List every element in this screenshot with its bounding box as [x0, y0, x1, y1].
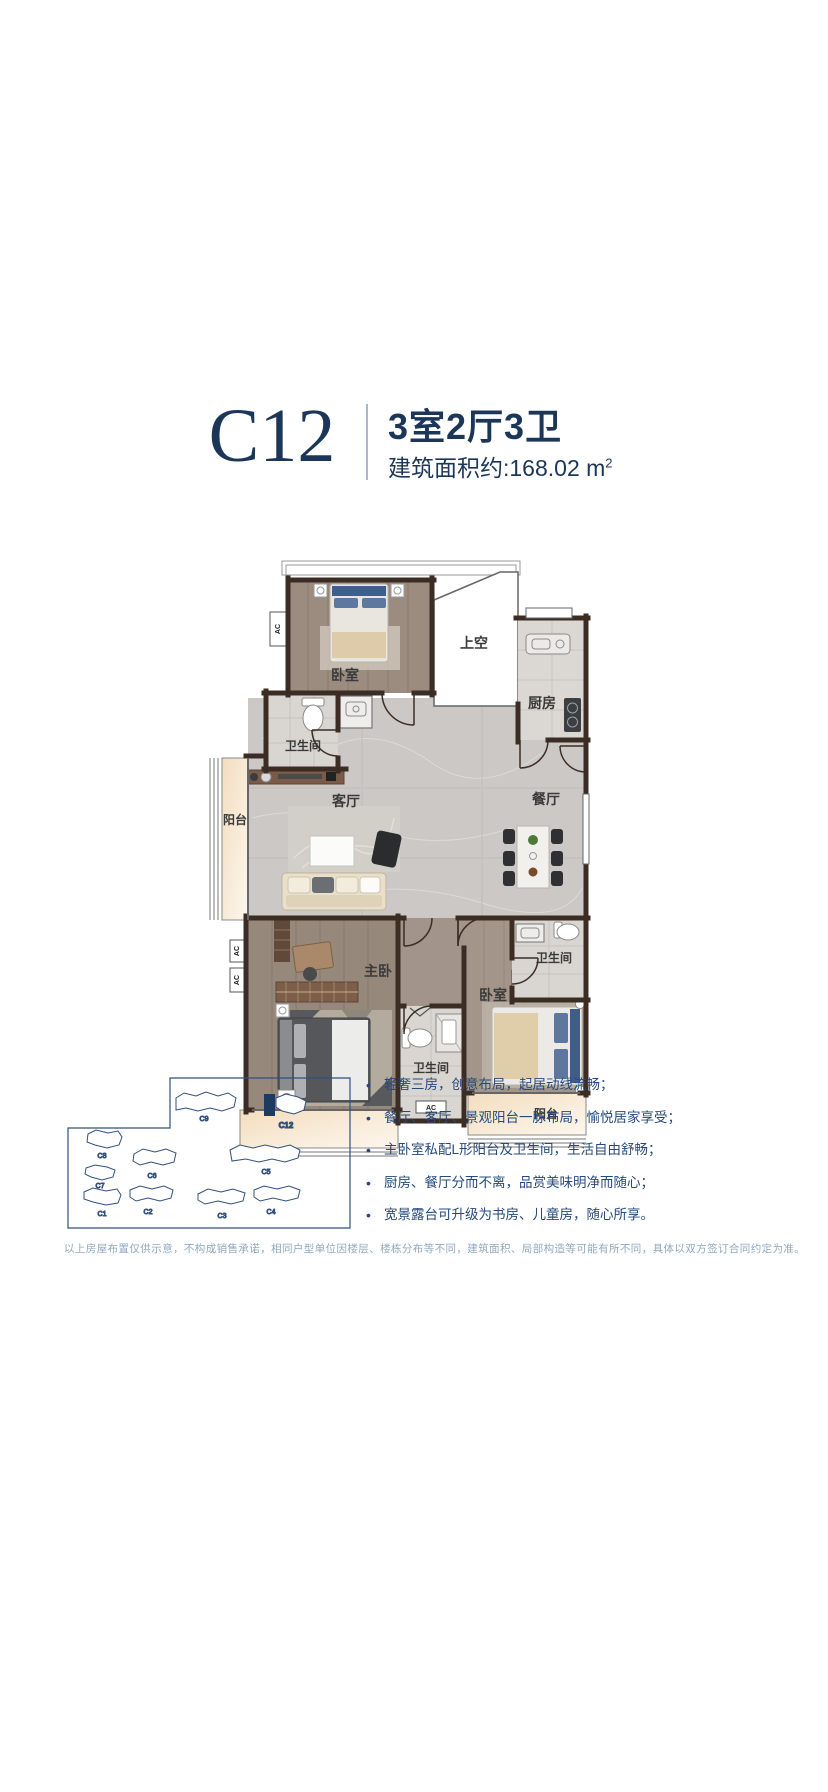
bathroom-top: 卫生间	[266, 693, 338, 769]
area-superscript: 2	[605, 455, 612, 470]
bathroom-right-label: 卫生间	[536, 950, 572, 965]
building-c2: C2	[130, 1186, 173, 1216]
void-room: 上空	[434, 572, 518, 706]
building-c5: C5	[230, 1145, 300, 1176]
nightstand	[391, 584, 404, 597]
svg-text:C9: C9	[200, 1116, 209, 1123]
svg-text:C1: C1	[98, 1211, 107, 1218]
bathroom-top-label: 卫生间	[285, 738, 321, 753]
nightstand	[276, 1004, 289, 1017]
area-text: 建筑面积约:168.02 m2	[388, 449, 613, 483]
living-room: 客厅	[282, 793, 402, 910]
layout-title: 3室2厅3卫	[388, 398, 562, 450]
bedroom-bottom-label: 卧室	[479, 987, 507, 1003]
building-c6: C6	[133, 1149, 176, 1180]
kitchen-sink	[526, 634, 570, 654]
building-c4: C4	[254, 1186, 300, 1216]
building-c3: C3	[198, 1189, 245, 1220]
bathroom-bottom-label: 卫生间	[413, 1060, 449, 1075]
nightstand	[314, 584, 327, 597]
feature-item: 宽景露台可升级为书房、儿童房，随心所享。	[362, 1208, 692, 1222]
bed-bottom	[492, 1007, 582, 1085]
bath-right-sink	[516, 924, 544, 942]
ac-unit-top: AC	[270, 612, 287, 646]
console-table	[240, 770, 344, 784]
svg-text:AC: AC	[275, 624, 282, 634]
feature-item: 主卧室私配L形阳台及卫生间，生活自由舒畅；	[362, 1143, 692, 1157]
bedroom-top: 卧室	[288, 578, 434, 693]
building-c12-label: C12	[279, 1121, 294, 1130]
svg-text:C2: C2	[144, 1209, 153, 1216]
building-c12: C12	[264, 1094, 306, 1130]
kitchen: 厨房	[518, 620, 586, 740]
bedroom-top-label: 卧室	[331, 667, 359, 683]
balcony-left-label: 阳台	[223, 812, 247, 827]
header-divider	[366, 404, 368, 480]
disclaimer-text: 以上房屋布置仅供示意，不构成销售承诺，相同户型单位因楼层、楼栋分布等不同，建筑面…	[64, 1241, 784, 1256]
ac-unit-master-2: AC	[230, 968, 245, 992]
sofa	[282, 873, 386, 910]
master-bedroom-label: 主卧	[364, 963, 392, 979]
feature-item: 餐厅、客厅、景观阳台一脉布局，愉悦居家享受；	[362, 1111, 692, 1125]
dining-room-label: 餐厅	[531, 791, 560, 807]
roof-outline	[282, 561, 520, 575]
svg-text:AC: AC	[234, 975, 241, 985]
washstand	[340, 696, 372, 728]
balcony-left: 阳台	[210, 758, 248, 920]
building-c8: C8	[87, 1130, 122, 1160]
building-c9: C9	[176, 1092, 236, 1123]
svg-text:C8: C8	[98, 1153, 107, 1160]
svg-text:AC: AC	[234, 946, 241, 956]
bookshelf	[274, 920, 290, 962]
svg-text:C5: C5	[262, 1169, 271, 1176]
svg-text:C3: C3	[218, 1213, 227, 1220]
feature-item: 厨房、餐厅分而不离，品赏美味明净而随心；	[362, 1176, 692, 1190]
wardrobe-master	[276, 982, 358, 1002]
unit-code: C12	[196, 390, 348, 482]
bed-top	[330, 584, 388, 662]
living-room-label: 客厅	[331, 793, 360, 809]
feature-item: 轻奢三房，创意布局，起居动线流畅；	[362, 1078, 692, 1092]
building-c7: C7	[85, 1165, 115, 1190]
toilet	[302, 698, 324, 731]
toilet	[402, 1028, 432, 1048]
bathroom-right: 卫生间	[512, 918, 586, 1000]
hallway-floor	[398, 918, 464, 1006]
feature-list: 轻奢三房，创意布局，起居动线流畅； 餐厅、客厅、景观阳台一脉布局，愉悦居家享受；…	[362, 1078, 692, 1241]
area-label: 建筑面积约:168.02 m	[388, 455, 605, 481]
svg-text:C4: C4	[267, 1209, 276, 1216]
shower	[436, 1014, 462, 1052]
ac-unit-master-1: AC	[230, 940, 245, 962]
coffee-table	[310, 836, 354, 866]
site-plan: C9 C12 C8 C6 C5 C7 C1 C2	[64, 1072, 354, 1232]
void-label: 上空	[460, 635, 488, 651]
kitchen-label: 厨房	[528, 695, 556, 711]
svg-text:C6: C6	[148, 1173, 157, 1180]
building-c1: C1	[84, 1188, 121, 1218]
floor-plan: 卧室 上空 厨房 卫生间	[182, 558, 592, 1158]
